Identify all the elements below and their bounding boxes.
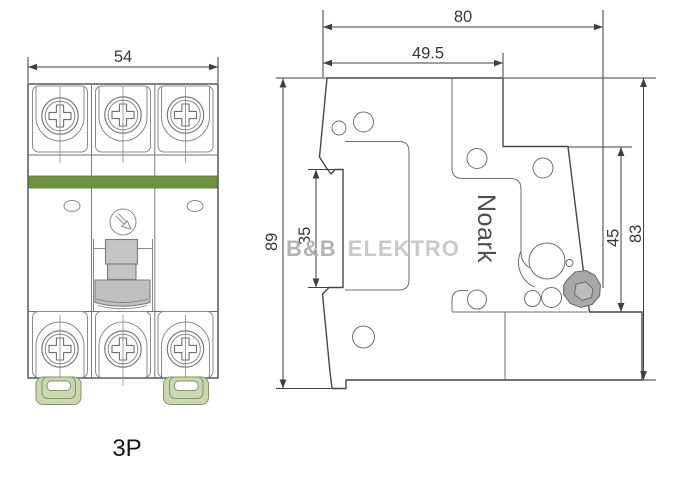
dim-45-label: 45: [605, 229, 623, 247]
drawing-canvas: 54 3P: [0, 0, 694, 497]
watermark-bold-part: B&B: [286, 236, 337, 261]
dim-89-label: 89: [263, 233, 281, 251]
pole-count-label: 3P: [112, 435, 141, 462]
green-band: [29, 176, 218, 188]
brand-noark-label: Noark: [472, 194, 500, 263]
dim-80-label: 80: [454, 8, 472, 26]
side-view: Noark: [263, 8, 656, 389]
din-clip-right: [164, 377, 209, 405]
dim-54-label: 54: [114, 48, 132, 66]
watermark-text: B&B ELEKTRO: [286, 236, 460, 261]
trip-indicator-screw: [110, 209, 136, 235]
watermark-light-part: ELEKTRO: [348, 236, 460, 261]
din-clip-left: [36, 377, 81, 405]
front-view: 54 3P: [28, 48, 218, 462]
dim-49-5-label: 49.5: [412, 45, 444, 63]
breaker-dimension-drawing: 54 3P: [0, 0, 694, 497]
dim-width-54: 54: [28, 48, 218, 83]
dim-83-label: 83: [627, 225, 645, 243]
